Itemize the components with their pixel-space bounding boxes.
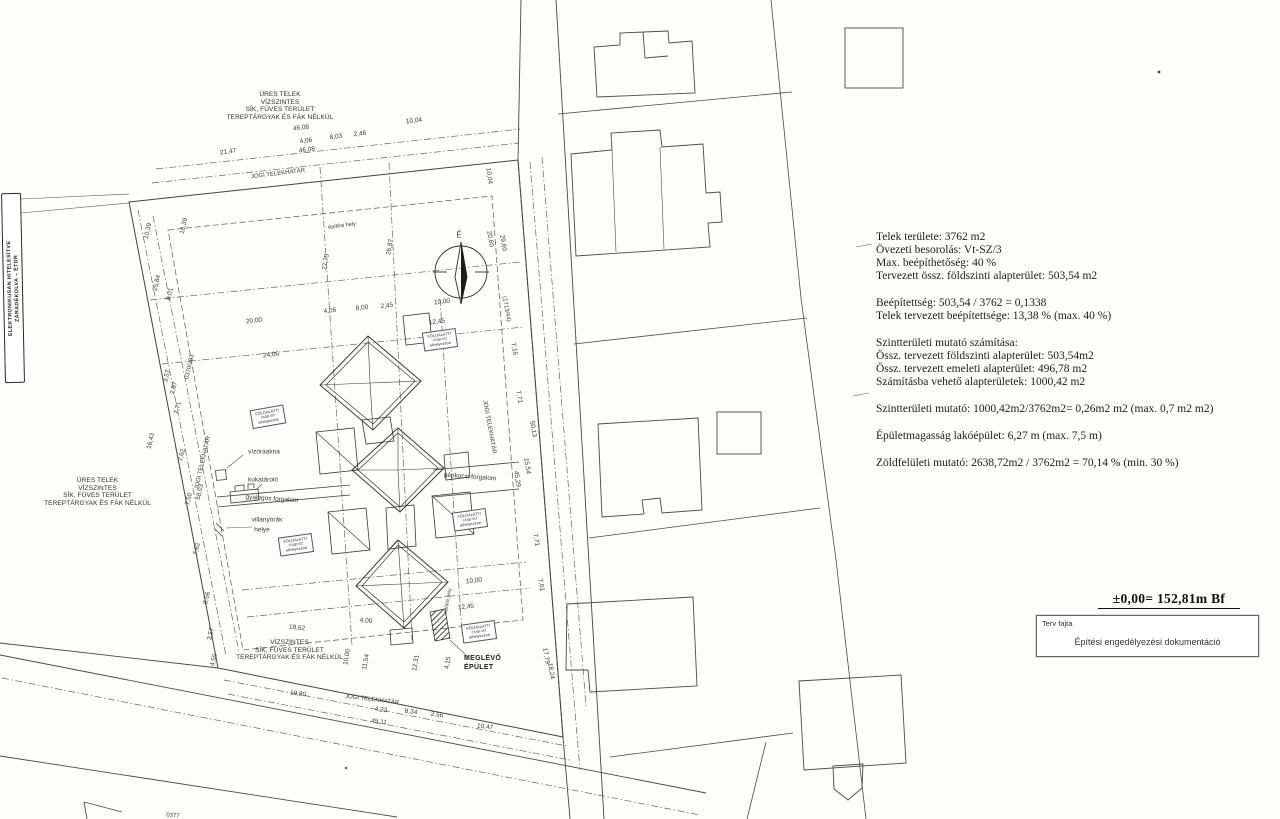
- dim-label: JOGI TELEKHATÁR: [481, 400, 496, 455]
- dim-label: 10,04: [405, 117, 422, 126]
- dim-label: 24,06: [262, 351, 279, 360]
- dim-label: 4,23: [374, 706, 387, 714]
- dim-label: 46,08: [292, 124, 309, 133]
- site-plan-document: ELEKTRONIKUSAN HITELESÍTVE ZÁRADÉKOLVA –…: [0, 0, 1280, 819]
- dim-label: JOGI TELEKHATÁR: [345, 694, 400, 707]
- dim-label: 3,57: [162, 369, 172, 383]
- dim-label: villanyórák: [252, 517, 283, 524]
- dim-label: 10,00: [342, 648, 352, 665]
- dim-label: JOGI TELEKHATÁR: [194, 436, 212, 490]
- dim-label: 4,15: [443, 656, 452, 670]
- dim-label: 11,54: [361, 654, 371, 671]
- annotation-layer: 46,084,068,032,4610,0421,4746,08JOGI TEL…: [0, 0, 1280, 819]
- dim-label: 45,29: [512, 470, 522, 487]
- dim-label: 12,45: [428, 318, 445, 327]
- dim-label: 0370/293: [184, 354, 195, 380]
- dim-label: 10,39: [179, 217, 189, 234]
- dim-label: 2,46: [353, 130, 366, 138]
- dim-label: 27,75: [321, 253, 331, 270]
- dim-label: gyalogos forgalom: [245, 494, 298, 505]
- dim-label: 10,00: [433, 298, 450, 307]
- dim-label: 7,71: [514, 390, 523, 404]
- dim-label: 25,84: [152, 274, 162, 291]
- dim-label: 8,03: [329, 133, 342, 141]
- dim-label: 10,47: [476, 723, 493, 732]
- dim-label: 10,04: [485, 167, 494, 184]
- dim-label: 16,43: [146, 432, 156, 449]
- dim-label: 10,39: [143, 222, 153, 239]
- dim-label: 7,71: [531, 533, 540, 547]
- dim-label: 7,71: [173, 401, 183, 415]
- dim-label: 10,00: [465, 577, 482, 586]
- dim-label: vízóraakna: [248, 449, 280, 456]
- dim-label: É: [456, 231, 461, 240]
- dim-label: 50,13: [528, 420, 538, 437]
- dim-label: 2,97: [169, 381, 179, 395]
- dim-label: 21,47: [219, 148, 236, 157]
- dim-label: 4,00: [359, 617, 372, 625]
- dim-label: 2,45: [380, 302, 393, 310]
- dim-label: 45,11: [371, 718, 388, 727]
- dim-label: helye: [254, 527, 270, 534]
- dim-label: 18,24: [546, 662, 556, 679]
- dim-label: 8,56: [202, 591, 212, 605]
- dim-label: 20,00: [245, 317, 262, 326]
- dim-label: 46,08: [298, 146, 315, 155]
- dim-label: 7,62: [192, 542, 202, 556]
- dim-label: JOGI TELEKHATÁR: [251, 168, 306, 181]
- underground-tank-note: FÖLDALATTIcsap.vízelhelyezése: [422, 328, 458, 352]
- underground-tank-note: FÖLDALATTIcsap.vízelhelyezése: [278, 533, 314, 557]
- dim-label: 15,54: [522, 457, 532, 474]
- dim-label: kukatároló: [248, 477, 278, 484]
- dim-label: (1713/44): [501, 296, 511, 322]
- dim-label: 12,31: [411, 654, 421, 671]
- dim-label: 7,62: [177, 448, 187, 462]
- dim-label: 3,57: [206, 627, 216, 641]
- dim-label: 7,16: [509, 342, 518, 356]
- dim-label: 4,06: [323, 307, 336, 315]
- dim-label: 2,56: [430, 711, 443, 719]
- dim-label: 12,45: [457, 603, 474, 612]
- underground-tank-note: FÖLDALATTIcsap.vízelhelyezése: [250, 404, 287, 429]
- underground-tank-note: FÖLDALATTIcsap.vízelhelyezése: [461, 620, 497, 644]
- dim-label: építési hely: [443, 588, 453, 614]
- dim-label: 4,55: [209, 653, 219, 667]
- dim-label: 4,06: [299, 137, 312, 145]
- dim-label: 18,62: [289, 624, 306, 633]
- dim-label: 8,34: [404, 708, 417, 716]
- dim-label: gépkocsi forgalom: [443, 472, 496, 483]
- dim-label: 26,87: [385, 238, 395, 255]
- dim-label: 7,50: [184, 492, 194, 506]
- dim-label: 8,00: [355, 304, 368, 312]
- underground-tank-note: FÖLDALATTIcsap.vízelhelyezése: [452, 508, 488, 532]
- dim-label: 0377: [166, 813, 180, 819]
- dim-label: 7,61: [536, 578, 545, 592]
- dim-label: 29,60: [498, 234, 508, 251]
- dim-label: 19,80: [289, 690, 306, 699]
- dim-label: 8,01: [165, 287, 175, 301]
- dim-label: építési hely: [328, 221, 356, 230]
- dim-label: 20,60: [485, 230, 495, 247]
